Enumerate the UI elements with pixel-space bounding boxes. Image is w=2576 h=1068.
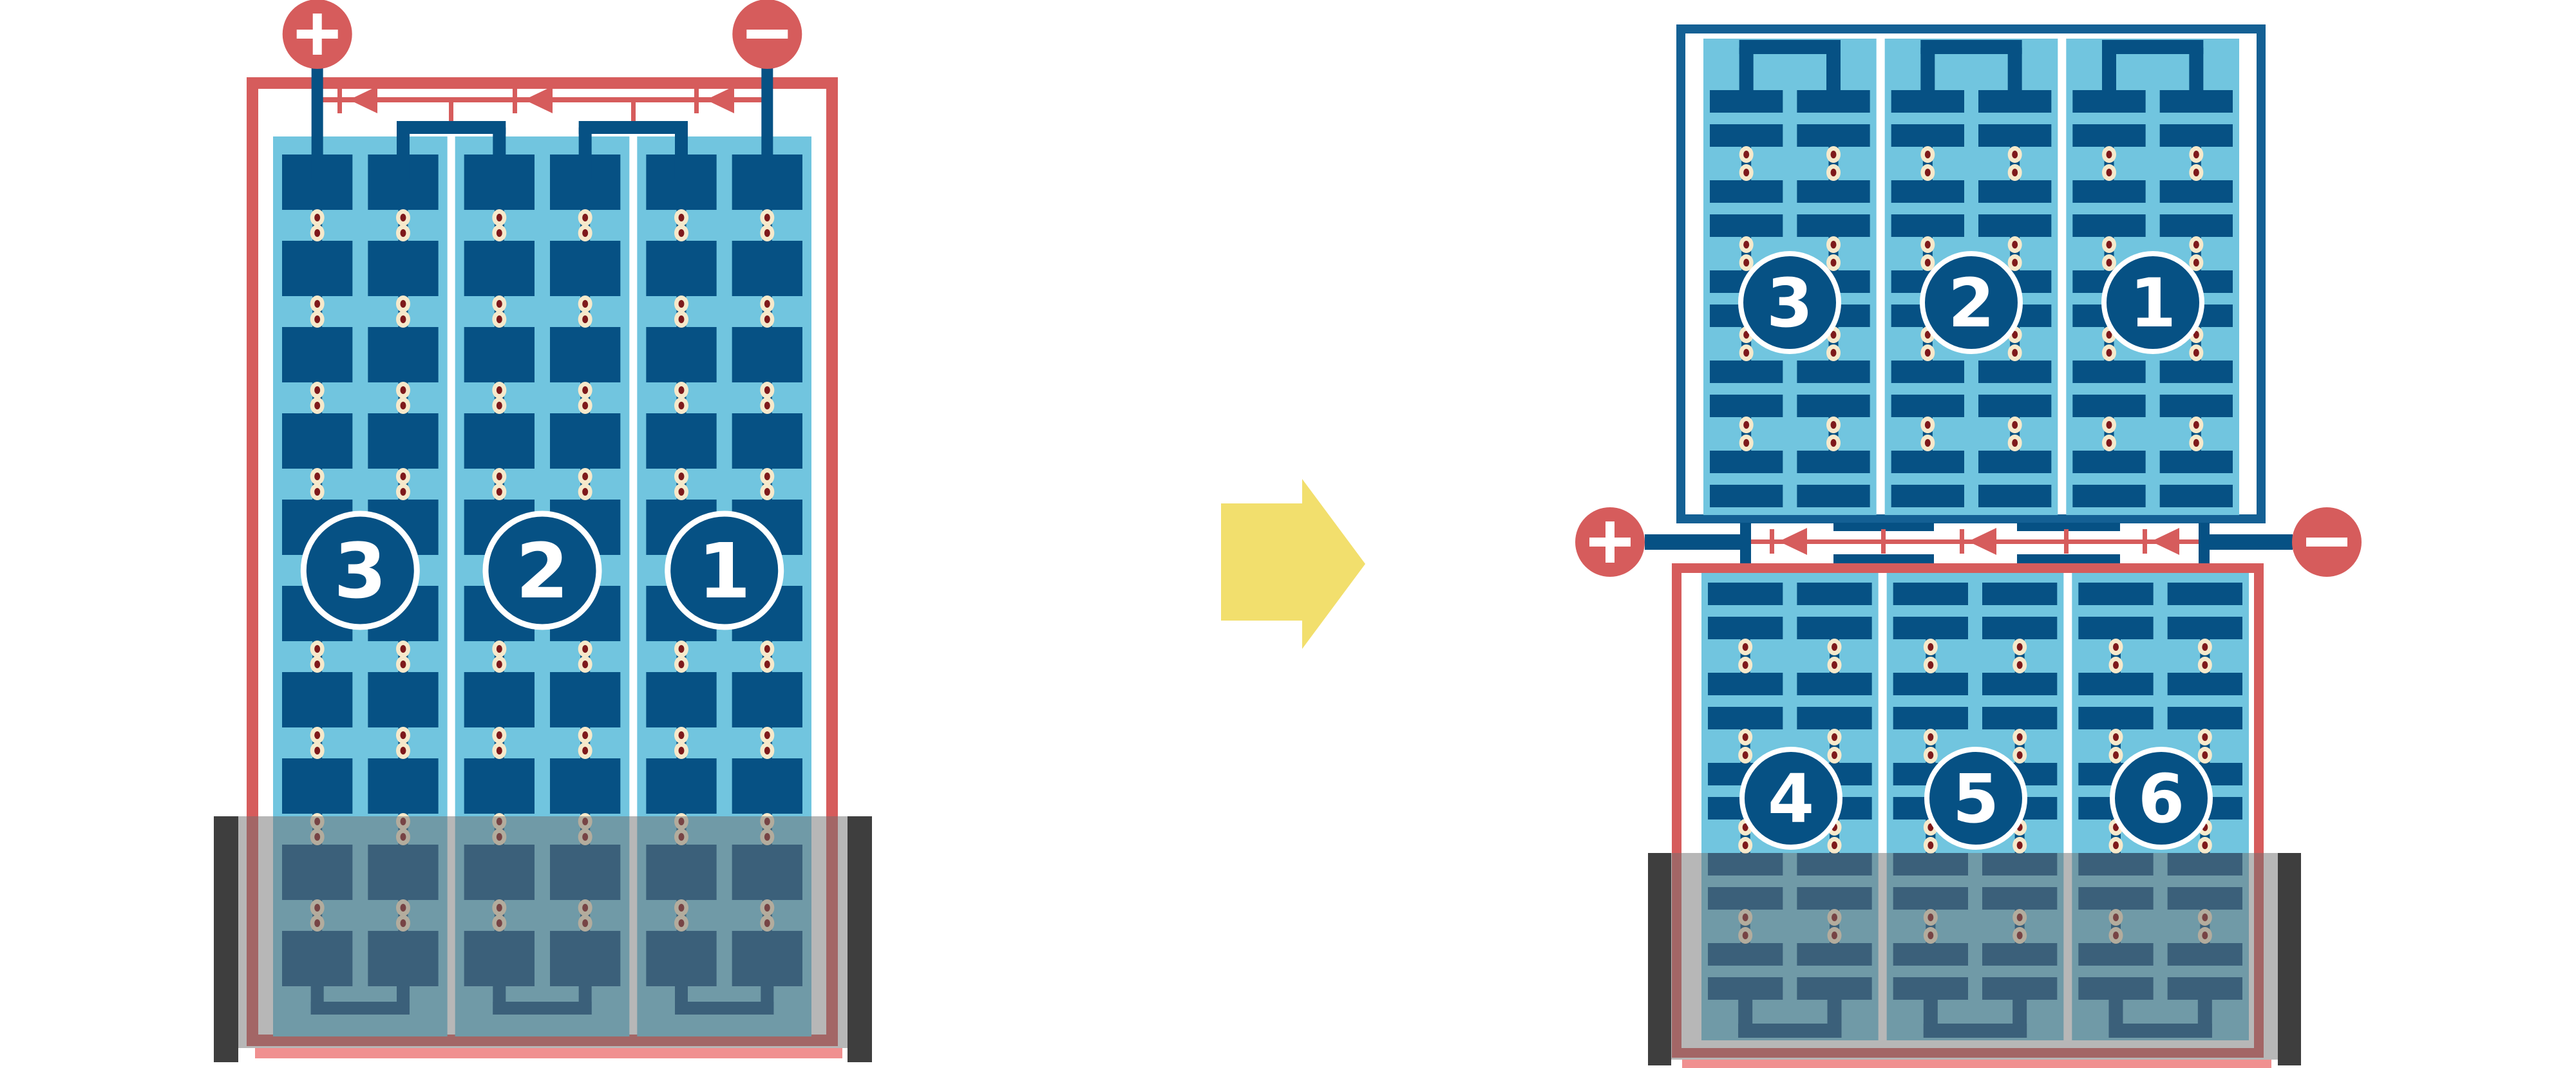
connector-dot-core [1831, 169, 1837, 176]
plate-bar [2168, 707, 2242, 729]
diagram-canvas: 3 2 1 [0, 0, 2576, 1068]
plate [550, 327, 620, 382]
plate-bar [1797, 124, 1870, 147]
cell-label: 1 [2130, 264, 2176, 342]
connector-dot-core [2202, 841, 2208, 849]
plate [368, 413, 438, 469]
plate-bar [1978, 90, 2051, 113]
connector-dot-core [400, 473, 406, 480]
diode-tick-3 [2143, 529, 2147, 554]
connector-dot-core [582, 300, 588, 308]
connector-dot-core [497, 488, 502, 496]
plate-bar [1978, 361, 2051, 383]
connector-dot-core [2107, 259, 2112, 267]
connector-dot-core [582, 214, 588, 221]
connector-dot-core [2017, 661, 2023, 669]
connector-dot-core [1925, 151, 1931, 158]
cell-top-bridge-bar [2102, 40, 2203, 54]
lower-tab [2017, 554, 2120, 563]
diode-tick-1 [337, 86, 342, 113]
intercell-bridge-leg [397, 127, 410, 179]
plate-bar [1797, 395, 1870, 417]
plate [282, 241, 352, 296]
connector-dot-core [2107, 169, 2112, 176]
connector-dot-core [2202, 643, 2208, 651]
connector-dot-core [314, 386, 320, 394]
plate-bar [2168, 617, 2242, 639]
connector-dot-core [497, 229, 502, 237]
lower-tab [1833, 554, 1934, 563]
plate-bar [1891, 180, 1964, 203]
plate-bar [1710, 90, 1783, 113]
connector-dot-core [2107, 421, 2112, 429]
plate [368, 672, 438, 727]
intercell-bridge-leg [579, 127, 592, 179]
connector-dot-core [497, 747, 502, 754]
connector-dot-core [678, 731, 684, 739]
connector-dot-core [2017, 733, 2023, 741]
transform-arrow-icon [1221, 479, 1365, 649]
connector-dot-core [2113, 751, 2119, 759]
connector-dot-core [2107, 439, 2112, 447]
right-tray [1648, 853, 2301, 1065]
connector-dot-core [678, 645, 684, 653]
plate-bar [1708, 707, 1783, 729]
connector-dot-core [1832, 751, 1837, 759]
connector-dot-core [497, 645, 502, 653]
plate-bar [1891, 90, 1964, 113]
connector-dot-core [2012, 151, 2018, 158]
plate-bar [1710, 124, 1783, 147]
connector-dot-core [1832, 733, 1837, 741]
bridge-post-right [2199, 523, 2210, 563]
cell-top-bridge-leg [1826, 48, 1841, 93]
connector-dot-core [2107, 151, 2112, 158]
plate-bar [1982, 673, 2057, 695]
plate-bar [2160, 361, 2233, 383]
connector-dot-core [400, 660, 406, 668]
plate-bar [2072, 124, 2145, 147]
connector-dot-core [1743, 733, 1748, 741]
plate-bar [1978, 485, 2051, 507]
plate-bar [1891, 214, 1964, 237]
connector-dot-core [1743, 751, 1748, 759]
connector-dot-core [1743, 643, 1748, 651]
right-positive-terminal [1575, 507, 1645, 577]
plate [550, 672, 620, 727]
diode-arrow-2 [1968, 528, 1996, 555]
left-cell-labels: 3 2 1 [303, 514, 781, 627]
diode-arrow-3 [706, 86, 734, 113]
plate [464, 413, 535, 469]
plate [282, 758, 352, 814]
connector-dot-core [582, 731, 588, 739]
cell-label: 1 [698, 527, 751, 615]
connector-dot-core [2012, 169, 2018, 176]
connector-dot-core [1927, 841, 1933, 849]
connector-dot-core [582, 660, 588, 668]
connector-dot-core [314, 747, 320, 754]
plate [732, 413, 802, 469]
connector-dot-core [400, 731, 406, 739]
plate-bar [1710, 485, 1783, 507]
plate [464, 672, 535, 727]
connector-dot-core [1831, 349, 1837, 357]
plate-bar [2160, 485, 2233, 507]
connector-dot-core [764, 315, 770, 323]
connector-dot-core [1927, 643, 1933, 651]
plate-bar [1797, 673, 1871, 695]
connector-dot-core [400, 488, 406, 496]
current-tick [1881, 529, 1886, 554]
plate [464, 758, 535, 814]
connector-dot-core [314, 488, 320, 496]
connector-dot-core [314, 473, 320, 480]
plate-bar [1891, 485, 1964, 507]
intercell-bridge-leg [493, 127, 506, 179]
plate-bar [1978, 180, 2051, 203]
plate-bar [1797, 214, 1870, 237]
cell-label: 2 [1948, 264, 1994, 342]
connector-dot-core [1925, 169, 1931, 176]
connector-dot-core [1925, 421, 1931, 429]
plate-bar [1891, 361, 1964, 383]
connector-dot-core [314, 731, 320, 739]
connector-dot-core [2202, 661, 2208, 669]
intercell-bridge-leg [675, 127, 688, 179]
connector-dot-core [764, 488, 770, 496]
connector-dot-core [2012, 349, 2018, 357]
right-battery-rearranged: 3 2 1 4 5 6 [1575, 29, 2362, 1068]
connector-dot-core [497, 402, 502, 409]
connector-dot-core [1743, 841, 1748, 849]
connector-dot-core [400, 645, 406, 653]
plate-bar [2072, 214, 2145, 237]
connector-dot-core [400, 214, 406, 221]
plate-bar [2160, 124, 2233, 147]
connector-dot-core [497, 315, 502, 323]
connector-dot-core [497, 386, 502, 394]
diode-arrow-1 [1779, 528, 1807, 555]
connector-dot-core [400, 386, 406, 394]
connector-dot-core [582, 315, 588, 323]
connector-dot-core [2113, 841, 2119, 849]
plate-bar [1797, 90, 1870, 113]
connector-dot-core [1743, 169, 1749, 176]
minus-icon [2306, 538, 2347, 547]
cell-label: 6 [2138, 760, 2184, 838]
plate [550, 413, 620, 469]
plate-bar [1708, 583, 1783, 605]
connector-dot-core [2202, 733, 2208, 741]
connector-dot-core [1925, 439, 1931, 447]
connector-dot-core [2193, 421, 2199, 429]
cell-top-bridge-leg [2102, 48, 2116, 93]
diode-arrow-2 [524, 86, 553, 113]
cell-label: 4 [1768, 760, 1814, 838]
connector-dot-core [314, 660, 320, 668]
cell-top-bridge-leg [2008, 48, 2022, 93]
intercell-bridge-bar [579, 121, 688, 134]
plate-bar [1978, 451, 2051, 473]
cell-label: 3 [334, 527, 386, 615]
connector-dot-core [400, 229, 406, 237]
plate-bar [2078, 673, 2153, 695]
plate [646, 327, 716, 382]
plate-bar [2160, 451, 2233, 473]
connector-dot-core [582, 402, 588, 409]
plate [282, 327, 352, 382]
connector-dot-core [1832, 661, 1837, 669]
connector-dot-core [314, 300, 320, 308]
connector-dot-core [314, 229, 320, 237]
plate-bar [1710, 214, 1783, 237]
plus-icon [1589, 538, 1631, 547]
connector-dot-core [2113, 733, 2119, 741]
plate-bar [1797, 451, 1870, 473]
battery-diagram: 3 2 1 [0, 0, 2576, 1068]
connector-dot-core [1927, 661, 1933, 669]
plate [368, 241, 438, 296]
cell-top-bridge-leg [1920, 48, 1935, 93]
connector-dot-core [2012, 421, 2018, 429]
minus-icon [746, 30, 788, 39]
connector-dot-core [2193, 151, 2199, 158]
connector-dot-core [1925, 241, 1931, 248]
plate-bar [1893, 673, 1968, 695]
plate-bar [1891, 124, 1964, 147]
connector-dot-core [2113, 643, 2119, 651]
right-negative-terminal [2292, 507, 2362, 577]
connector-dot-core [497, 214, 502, 221]
plate [732, 327, 802, 382]
connector-dot-core [1743, 439, 1749, 447]
plate-bar [1710, 395, 1783, 417]
connector-dot-core [1927, 733, 1933, 741]
plate-bar [1710, 451, 1783, 473]
connector-dot-core [2193, 241, 2199, 248]
tray-side-bar-left [1648, 853, 1671, 1065]
plate-bar [1708, 673, 1783, 695]
connector-dot-core [764, 473, 770, 480]
plate-bar [2072, 361, 2145, 383]
plate-bar [2160, 395, 2233, 417]
plate-bar [2168, 673, 2242, 695]
plate [646, 241, 716, 296]
plate [282, 413, 352, 469]
bridge-post-left [1740, 523, 1751, 563]
diode-arrow-1 [349, 86, 377, 113]
plus-icon [297, 30, 338, 39]
connector-dot-core [1831, 421, 1837, 429]
connector-dot-core [2012, 241, 2018, 248]
plate-bar [1708, 617, 1783, 639]
connector-dot-core [2107, 241, 2112, 248]
plate-bar [1982, 707, 2057, 729]
connector-dot-core [678, 214, 684, 221]
plate-bar [1710, 180, 1783, 203]
negative-bus-bar [2199, 534, 2293, 550]
plate-bar [1710, 361, 1783, 383]
connector-dot-core [314, 402, 320, 409]
connector-dot-core [1925, 259, 1931, 267]
connector-dot-core [582, 473, 588, 480]
plate-bar [1982, 583, 2057, 605]
plate [646, 413, 716, 469]
left-frame-shadow [255, 1048, 842, 1058]
connector-dot-core [678, 473, 684, 480]
connector-dot-core [764, 386, 770, 394]
connector-dot-core [1927, 751, 1933, 759]
connector-dot-core [764, 229, 770, 237]
connector-dot-core [1831, 241, 1837, 248]
plate-bar [1797, 707, 1871, 729]
cell-label: 3 [1766, 264, 1813, 342]
plate [732, 241, 802, 296]
diode-tick-1 [1770, 529, 1774, 554]
plate [646, 672, 716, 727]
diode-tick-3 [694, 86, 699, 113]
connector-dot-core [497, 473, 502, 480]
plate [732, 672, 802, 727]
right-frame-shadow [1682, 1060, 2271, 1068]
connector-dot-core [2202, 751, 2208, 759]
connector-dot-core [2193, 349, 2199, 357]
plate-bar [2168, 583, 2242, 605]
plate [368, 758, 438, 814]
connector-dot-core [678, 488, 684, 496]
cell-top-bridge-leg [2189, 48, 2203, 93]
plate-bar [1797, 180, 1870, 203]
plate-bar [2078, 707, 2153, 729]
connector-dot-core [1743, 661, 1748, 669]
plate-bar [1893, 707, 1968, 729]
connector-dot-core [314, 214, 320, 221]
connector-dot-core [582, 747, 588, 754]
connector-dot-core [1743, 151, 1749, 158]
diode-tick-2 [1960, 529, 1964, 554]
intercell-bridge-bar [397, 121, 506, 134]
plate-bar [2160, 180, 2233, 203]
plate [550, 758, 620, 814]
plate-bar [1893, 617, 1968, 639]
connector-dot-core [582, 488, 588, 496]
left-negative-terminal [732, 0, 802, 69]
connector-dot-core [678, 660, 684, 668]
left-battery-monoblock: 3 2 1 [214, 0, 872, 1062]
plate-bar [1982, 617, 2057, 639]
connector-dot-core [764, 645, 770, 653]
plate [368, 327, 438, 382]
left-tray [214, 816, 872, 1062]
connector-dot-core [678, 229, 684, 237]
connector-dot-core [764, 214, 770, 221]
plate-bar [1797, 361, 1870, 383]
tray-overlay [1648, 853, 2301, 1060]
connector-dot-core [314, 645, 320, 653]
connector-dot-core [2017, 751, 2023, 759]
connector-dot-core [497, 731, 502, 739]
connector-dot-core [2017, 841, 2023, 849]
connector-dot-core [764, 731, 770, 739]
plate-bar [2072, 451, 2145, 473]
plate-bar [2072, 180, 2145, 203]
connector-dot-core [2193, 259, 2199, 267]
connector-dot-core [678, 402, 684, 409]
connector-dot-core [497, 660, 502, 668]
connector-dot-core [400, 300, 406, 308]
connector-dot-core [582, 645, 588, 653]
connector-dot-core [678, 300, 684, 308]
plate-bar [1797, 617, 1871, 639]
cell-top-bridge-bar [1739, 40, 1841, 54]
plate-bar [2160, 214, 2233, 237]
plate-bar [2072, 90, 2145, 113]
connector-dot-core [1831, 151, 1837, 158]
connector-dot-core [678, 386, 684, 394]
cell-label: 5 [1953, 760, 1999, 838]
plate-bar [2072, 485, 2145, 507]
plate [464, 241, 535, 296]
connector-dot-core [2113, 661, 2119, 669]
connector-dot-core [582, 229, 588, 237]
connector-dot-core [1832, 841, 1837, 849]
left-positive-terminal [283, 0, 352, 69]
connector-dot-core [764, 402, 770, 409]
connector-dot-core [2107, 349, 2112, 357]
tray-side-bar-right [2278, 853, 2301, 1065]
connector-dot-core [1743, 241, 1749, 248]
connector-dot-core [497, 300, 502, 308]
connector-dot-core [1743, 259, 1749, 267]
connector-dot-core [1925, 349, 1931, 357]
plate [732, 758, 802, 814]
plate [550, 241, 620, 296]
plate-bar [1891, 451, 1964, 473]
diode-tick-2 [513, 86, 517, 113]
connector-dot-core [1743, 421, 1749, 429]
plate-bar [1891, 395, 1964, 417]
left-current-path [317, 86, 767, 127]
connector-dot-core [1832, 643, 1837, 651]
connector-dot-core [2193, 169, 2199, 176]
plate [282, 672, 352, 727]
plate-bar [2072, 395, 2145, 417]
plate-bar [2078, 617, 2153, 639]
connector-dot-core [1831, 259, 1837, 267]
right-interconnect [1645, 523, 2293, 563]
connector-dot-core [400, 747, 406, 754]
connector-dot-core [1831, 439, 1837, 447]
connector-dot-core [1743, 349, 1749, 357]
tray-side-bar-right [848, 816, 872, 1062]
cell-top-bridge-leg [1739, 48, 1754, 93]
connector-dot-core [2193, 439, 2199, 447]
plate-bar [1978, 124, 2051, 147]
plate-bar [1978, 395, 2051, 417]
plate-bar [2160, 90, 2233, 113]
tray-side-bar-left [214, 816, 238, 1062]
tray-overlay [214, 816, 872, 1048]
plate [646, 758, 716, 814]
connector-dot-core [400, 315, 406, 323]
connector-dot-core [678, 747, 684, 754]
cell-top-bridge-bar [1920, 40, 2022, 54]
plate [464, 327, 535, 382]
right-cell-labels: 3 2 1 4 5 6 [1741, 254, 2210, 847]
plate-bar [1893, 583, 1968, 605]
cell-label: 2 [516, 527, 569, 615]
